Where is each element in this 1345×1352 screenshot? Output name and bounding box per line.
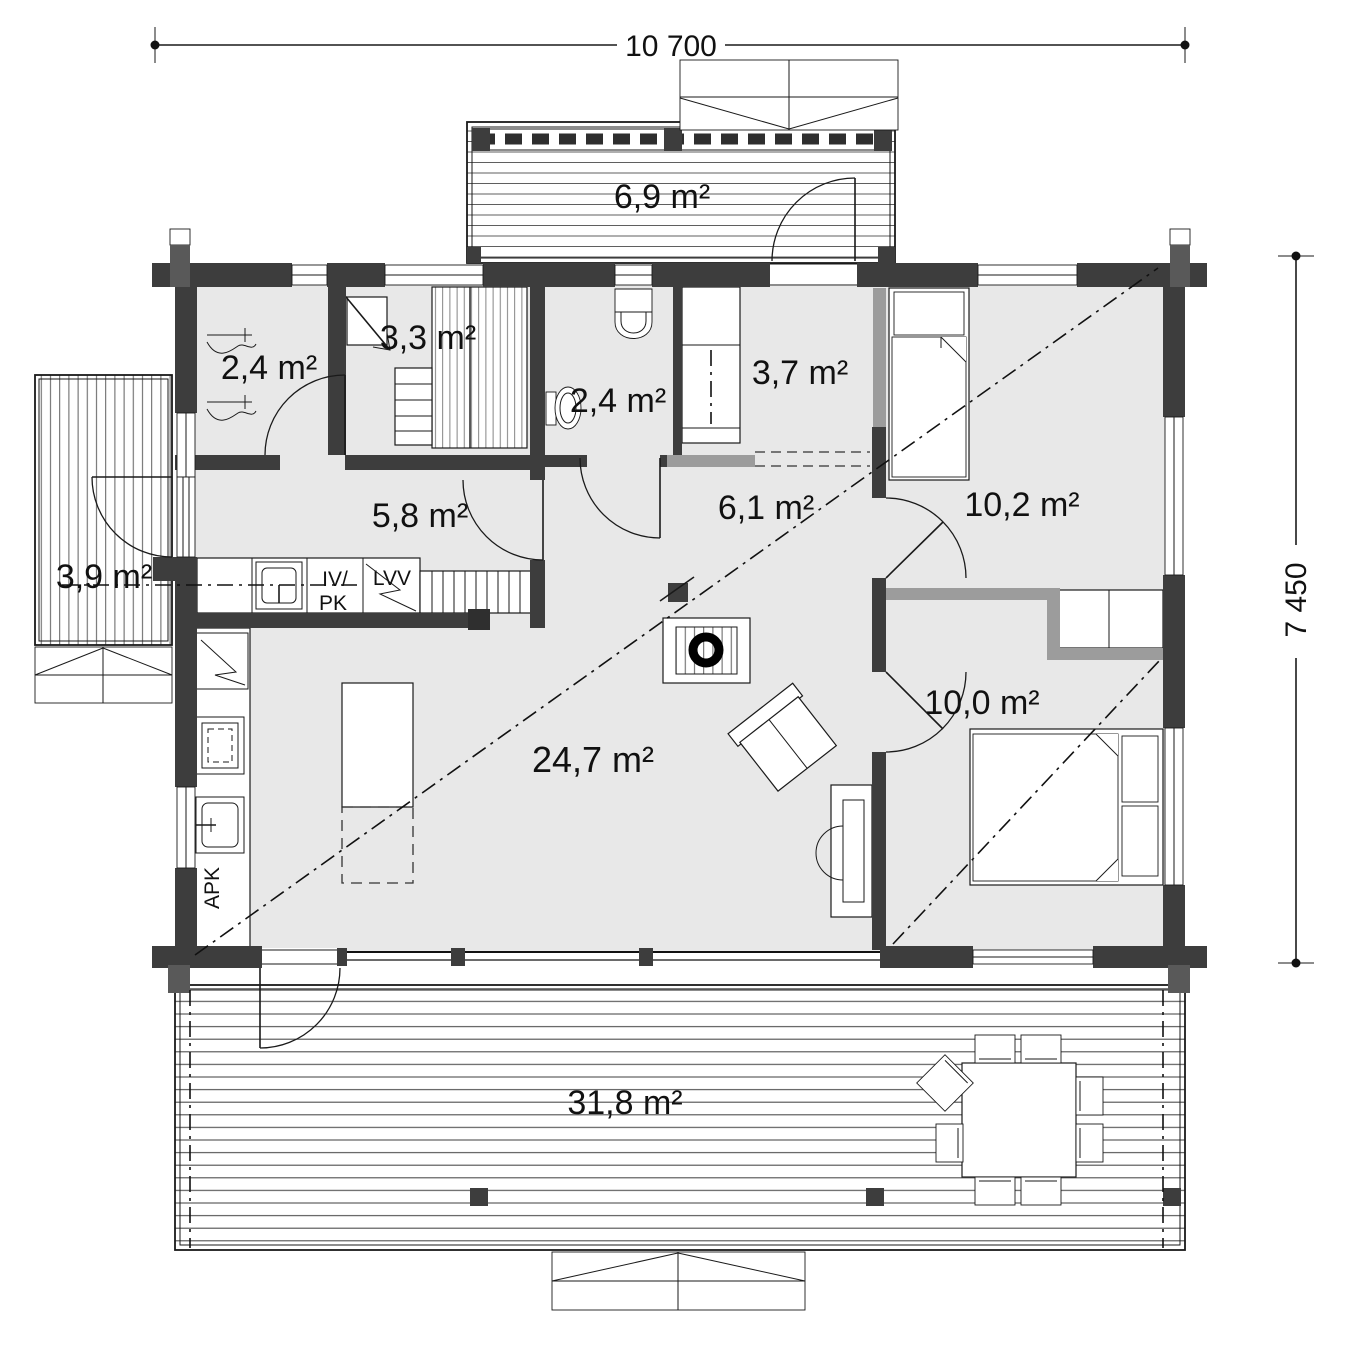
terrace-post xyxy=(470,1188,488,1206)
utility-stairs xyxy=(420,571,533,613)
window xyxy=(177,787,195,868)
room-label-hallway: 6,1 m² xyxy=(718,489,814,527)
window xyxy=(615,265,652,285)
dimension-width-label: 10 700 xyxy=(625,30,717,63)
porch-rail-post xyxy=(874,128,892,151)
room-label-bedroom-se: 10,0 m² xyxy=(924,684,1039,722)
room-label-terrace-west: 3,9 m² xyxy=(56,558,152,596)
single-bed xyxy=(889,288,969,480)
south-terrace-steps xyxy=(552,1252,805,1310)
dimension-height-label: 7 450 xyxy=(1280,562,1313,637)
window xyxy=(1165,417,1183,575)
dishwasher-label: APK xyxy=(201,867,224,909)
west-terrace-steps xyxy=(35,647,172,703)
vent-unit-label-1: IV/ xyxy=(322,568,348,591)
bedroom-closet xyxy=(1056,590,1163,648)
utility-counter: IV/ PK LVV xyxy=(197,558,420,615)
sauna-benches xyxy=(432,287,527,448)
window xyxy=(978,265,1077,285)
room-label-living: 24,7 m² xyxy=(532,739,654,780)
window xyxy=(177,413,195,477)
room-label-bathroom: 2,4 m² xyxy=(570,382,666,420)
room-label-porch: 6,9 m² xyxy=(614,178,710,216)
room-label-closet: 3,7 m² xyxy=(752,354,848,392)
window xyxy=(1165,728,1183,885)
entry-wardrobe xyxy=(682,287,740,443)
room-label-sauna: 3,3 m² xyxy=(380,319,476,357)
west-terrace-deck xyxy=(35,375,172,703)
north-entry-steps xyxy=(680,60,898,130)
dimension-top: 10 700 xyxy=(151,27,1190,63)
dimension-right: 7 450 xyxy=(1278,252,1314,968)
room-label-terrace-south: 31,8 m² xyxy=(567,1084,682,1122)
room-label-utility-nw: 2,4 m² xyxy=(221,349,317,387)
terrace-post xyxy=(1163,1188,1181,1206)
room-label-utility: 5,8 m² xyxy=(372,497,468,535)
double-bed xyxy=(970,729,1163,885)
porch-rail-post xyxy=(664,128,682,151)
window xyxy=(385,265,483,285)
vent-unit-label-2: PK xyxy=(319,592,347,615)
porch-rail-post xyxy=(472,128,490,151)
floor-plan-page: IV/ PK LVV APK xyxy=(0,0,1345,1352)
sauna-step-ladder xyxy=(395,368,432,445)
terrace-post xyxy=(866,1188,884,1206)
floor-plan-drawing: IV/ PK LVV APK xyxy=(0,0,1345,1352)
kitchen-counter: APK xyxy=(192,628,250,948)
window xyxy=(973,950,1093,964)
window xyxy=(292,265,327,285)
shower-basin xyxy=(615,289,652,339)
room-label-bedroom-ne: 10,2 m² xyxy=(964,486,1079,524)
water-heater-label: LVV xyxy=(373,567,411,590)
